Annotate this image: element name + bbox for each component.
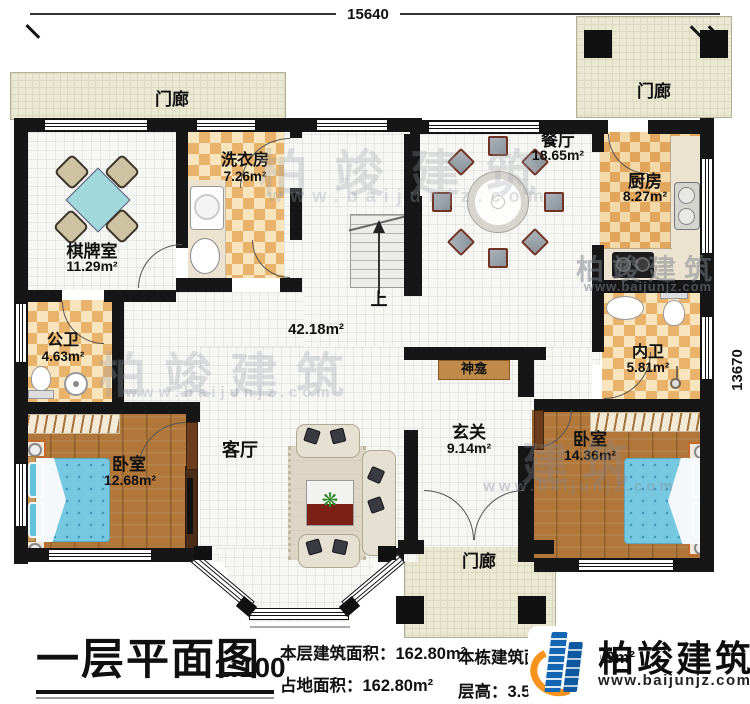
wall: [404, 430, 418, 540]
wall: [112, 302, 124, 402]
wall: [186, 402, 200, 422]
wall: [592, 245, 604, 280]
stat-floor-area-label: 本层建筑面积：: [280, 645, 396, 663]
bay-post: [378, 546, 396, 560]
window: [578, 559, 674, 571]
stat-story-height-label: 层高：: [458, 683, 508, 701]
brand-website: www.baijunjz.com: [598, 672, 748, 689]
closet: [590, 412, 708, 432]
toilet: [31, 366, 51, 391]
shower-head: [670, 378, 681, 389]
dimension-top-label: 15640: [336, 6, 400, 22]
bay-steps: [250, 622, 350, 628]
wall: [290, 118, 302, 138]
dining-chair: [544, 192, 564, 212]
bay-window: [249, 608, 349, 620]
drawing-scale: 1:100: [214, 652, 276, 683]
stair-arrow-head: [373, 220, 385, 233]
porch-column: [584, 30, 612, 58]
laundry-label: 洗衣房: [210, 152, 280, 170]
porch-top-left-label: 门廊: [132, 90, 212, 109]
inner-bathroom-area: 5.81m²: [618, 360, 678, 375]
porch-column: [396, 596, 424, 624]
wall: [592, 292, 604, 352]
door-leaf: [186, 422, 198, 470]
wall: [592, 399, 712, 412]
porch-top-right-label: 门廊: [616, 82, 692, 101]
public-bathroom-label: 公卫: [33, 332, 93, 350]
wall: [176, 130, 188, 248]
wall: [176, 278, 232, 292]
dining-table-center: [491, 195, 505, 209]
title-underline-thin: [36, 697, 274, 699]
laundry-sink: [190, 238, 220, 274]
lamp-icon: [28, 443, 42, 457]
dimension-tick: [26, 24, 40, 38]
chess-room-area: 11.29m²: [58, 259, 126, 275]
dining-chair: [488, 248, 508, 268]
entry-hall-area: 9.14m²: [436, 441, 502, 457]
drawing-title: 一层平面图: [36, 636, 240, 684]
wall: [280, 278, 302, 292]
wall: [592, 280, 712, 293]
porch-column: [518, 596, 546, 624]
dining-chair: [488, 136, 508, 156]
laundry-area: 7.26m²: [212, 169, 278, 184]
kitchen-sink-basin: [678, 187, 695, 204]
kitchen-area: 8.27m²: [611, 189, 679, 205]
tv: [187, 478, 193, 534]
floor-plan-canvas: 15640 13670 门廊 门廊 门廊: [0, 0, 750, 704]
dining-chair: [432, 192, 452, 212]
open-area-label: 42.18m²: [278, 322, 354, 339]
stat-footprint: 占地面积：162.80m²: [280, 672, 433, 696]
wash-basin-drain: [73, 381, 79, 387]
sofa-pillow: [332, 539, 349, 556]
washing-machine-drum: [194, 194, 220, 220]
window: [701, 316, 713, 380]
stove-burner: [616, 257, 631, 272]
wall: [408, 196, 422, 296]
brand-logo-icon: [528, 626, 600, 702]
toilet-tank: [28, 390, 54, 399]
bay-post: [194, 546, 212, 560]
stairs-up-label: 上: [366, 290, 392, 309]
wall: [104, 290, 176, 302]
kitchen-sink-basin: [678, 208, 695, 225]
door-leaf: [534, 410, 544, 450]
window: [15, 463, 27, 527]
toilet: [663, 300, 685, 326]
wall: [518, 347, 534, 397]
porch-column: [700, 30, 728, 58]
window: [44, 119, 148, 131]
public-bathroom-area: 4.63m²: [31, 349, 95, 364]
living-room-label: 客厅: [205, 440, 275, 460]
shrine-label: 神龛: [438, 362, 510, 377]
dimension-right-label: 13670: [729, 335, 745, 405]
stat-footprint-value: 162.80m²: [363, 677, 434, 695]
title-underline: [36, 690, 274, 694]
dining-area: 18.65m²: [516, 148, 600, 164]
stat-floor-area: 本层建筑面积：162.80m²: [280, 640, 466, 664]
bedroom-right-area: 14.36m²: [548, 448, 632, 464]
stat-floor-area-value: 162.80m²: [396, 645, 467, 663]
window: [701, 158, 713, 254]
bedroom-left-area: 12.68m²: [88, 473, 172, 489]
wall: [398, 540, 424, 554]
window: [196, 119, 256, 131]
closet: [20, 414, 120, 434]
plant-icon: ❋: [318, 489, 342, 513]
wall: [290, 188, 302, 240]
stair-arrow-line: [378, 232, 380, 294]
stove-burner: [635, 257, 650, 272]
window: [15, 303, 27, 363]
wash-basin: [606, 296, 644, 320]
porch-bottom-label: 门廊: [424, 552, 534, 571]
wall: [600, 120, 608, 134]
wall: [14, 402, 124, 414]
window: [48, 549, 152, 561]
window: [316, 119, 388, 131]
wall: [14, 290, 62, 302]
stat-footprint-label: 占地面积：: [280, 677, 363, 695]
